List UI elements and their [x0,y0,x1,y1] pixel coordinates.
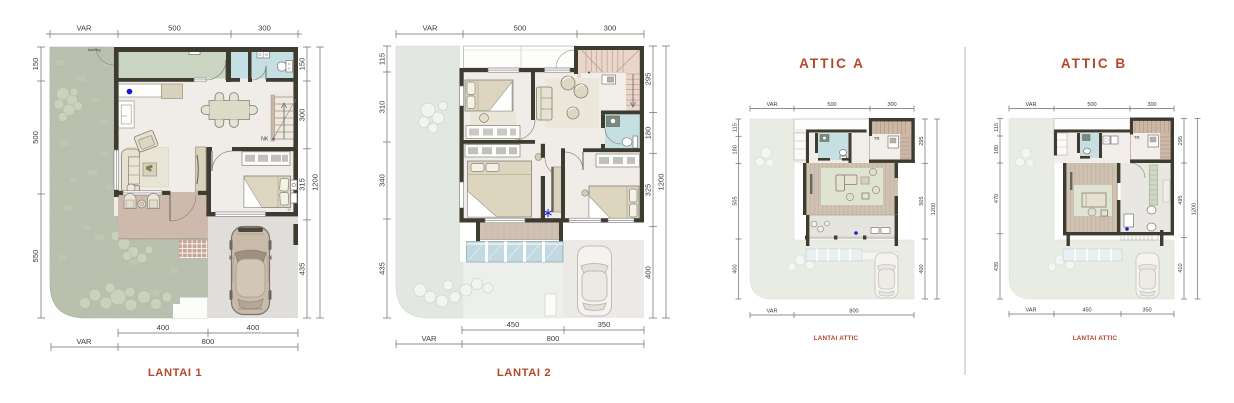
svg-text:435: 435 [298,263,307,276]
svg-text:450: 450 [507,320,520,329]
svg-text:1200: 1200 [657,174,666,191]
svg-text:400: 400 [732,264,738,273]
svg-text:350: 350 [1142,308,1151,314]
svg-text:180: 180 [994,145,1000,154]
svg-text:VAR: VAR [766,309,777,315]
svg-text:180: 180 [644,127,653,140]
svg-text:NK: NK [261,137,269,143]
svg-text:VAR: VAR [766,102,777,108]
svg-text:470: 470 [994,194,1000,203]
svg-text:500: 500 [827,102,836,108]
svg-text:VAR: VAR [1025,308,1036,314]
svg-text:400: 400 [247,323,260,332]
svg-text:505: 505 [919,196,925,205]
svg-text:1200: 1200 [931,203,937,215]
svg-text:800: 800 [547,334,560,343]
svg-text:295: 295 [1178,136,1184,145]
svg-text:800: 800 [849,309,858,315]
svg-text:505: 505 [732,196,738,205]
svg-text:180: 180 [732,145,738,154]
svg-text:325: 325 [644,184,653,197]
svg-text:550: 550 [31,250,40,263]
svg-text:TR: TR [874,136,880,141]
svg-text:300: 300 [298,109,307,122]
svg-text:500: 500 [168,24,181,33]
svg-text:300: 300 [258,24,271,33]
svg-text:115: 115 [378,53,387,65]
svg-text:115: 115 [732,123,738,132]
svg-text:295: 295 [644,73,653,86]
svg-text:ATTIC A: ATTIC A [799,56,865,71]
svg-text:800: 800 [202,337,215,346]
svg-text:VAR: VAR [76,24,92,33]
svg-text:150: 150 [31,58,40,71]
svg-text:ATTIC B: ATTIC B [1061,56,1127,71]
svg-text:1200: 1200 [311,174,320,191]
svg-text:350: 350 [598,320,611,329]
svg-text:500: 500 [31,131,40,144]
svg-text:VAR: VAR [421,334,437,343]
svg-text:LANTAI ATTIC: LANTAI ATTIC [1073,335,1118,342]
svg-text:LANTAI 2: LANTAI 2 [497,367,551,379]
svg-text:VAR: VAR [422,24,438,33]
svg-text:295: 295 [919,136,925,145]
svg-text:310: 310 [378,101,387,114]
svg-text:340: 340 [378,174,387,187]
svg-text:LANTAI ATTIC: LANTAI ATTIC [814,335,859,342]
svg-text:410: 410 [1178,263,1184,272]
svg-text:VAR: VAR [76,337,92,346]
svg-text:115: 115 [994,123,1000,132]
svg-text:TR: TR [1134,135,1140,140]
svg-text:LANTAI 1: LANTAI 1 [148,367,202,379]
svg-text:400: 400 [644,266,653,279]
svg-text:300: 300 [1147,102,1156,108]
svg-text:435: 435 [994,262,1000,271]
svg-text:450: 450 [1082,308,1091,314]
svg-text:500: 500 [514,24,527,33]
svg-text:300: 300 [604,24,617,33]
svg-text:435: 435 [378,262,387,275]
svg-text:300: 300 [887,102,896,108]
svg-text:400: 400 [919,264,925,273]
svg-text:315: 315 [298,178,307,191]
svg-text:500: 500 [1087,102,1096,108]
svg-text:150: 150 [298,58,307,71]
svg-text:kavling: kavling [88,47,100,52]
svg-text:400: 400 [157,323,170,332]
svg-text:495: 495 [1178,195,1184,204]
svg-text:1200: 1200 [1191,203,1197,215]
svg-text:VAR: VAR [1025,102,1036,108]
